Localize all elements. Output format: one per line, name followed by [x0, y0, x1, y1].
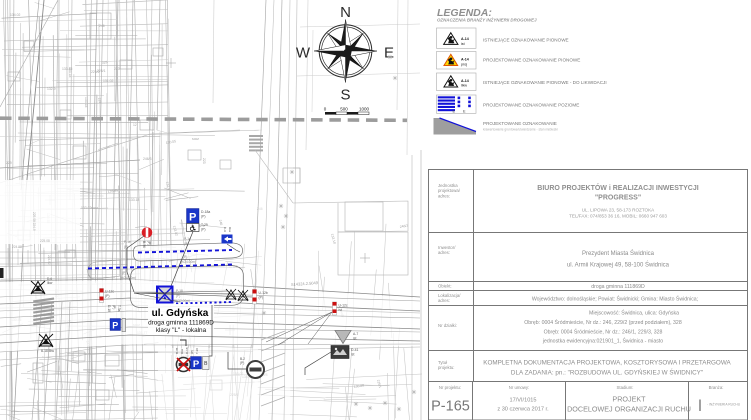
svg-text:ist: ist — [461, 42, 465, 46]
svg-text:224.82: 224.82 — [47, 255, 51, 265]
svg-text:droga gminna 111869D: droga gminna 111869D — [148, 320, 214, 327]
svg-text:Obiekt:: Obiekt: — [438, 284, 452, 289]
svg-text:229: 229 — [97, 97, 102, 104]
svg-text:D-18: D-18 — [185, 347, 189, 354]
svg-text:229: 229 — [6, 161, 12, 165]
svg-text:ist: ist — [353, 337, 356, 341]
svg-text:500: 500 — [340, 106, 348, 111]
svg-text:Nr projektu:: Nr projektu: — [439, 385, 461, 390]
svg-text:130.55: 130.55 — [165, 139, 176, 145]
svg-text:z 30 czerwca 2017 r.: z 30 czerwca 2017 r. — [497, 407, 549, 413]
svg-text:likw: likw — [47, 281, 53, 285]
svg-text:133.18: 133.18 — [84, 97, 88, 107]
svg-text:(P): (P) — [105, 294, 110, 298]
svg-text:likw: likw — [461, 84, 467, 88]
svg-text:Branża:: Branża: — [709, 385, 724, 390]
svg-text:133.02: 133.02 — [172, 225, 179, 236]
svg-text:132.9: 132.9 — [47, 87, 56, 91]
svg-text:D-18: D-18 — [107, 305, 111, 312]
svg-text:225/1: 225/1 — [97, 69, 106, 73]
svg-text:133.18: 133.18 — [330, 233, 337, 244]
svg-text:S: S — [340, 87, 350, 104]
svg-text:BIURO PROJEKTÓW i REALIZACJI I: BIURO PROJEKTÓW i REALIZACJI INWESTYCJI — [537, 183, 698, 192]
svg-text:134.02: 134.02 — [10, 13, 20, 17]
svg-text:C-9: C-9 — [223, 227, 227, 232]
svg-text:U-12c: U-12c — [105, 290, 114, 294]
svg-text:(H/24.00m): (H/24.00m) — [120, 276, 136, 280]
svg-text:proj: proj — [461, 62, 467, 66]
svg-text:PROJEKTOWANE OZNAKOWANIE PIONO: PROJEKTOWANE OZNAKOWANIE PIONOWE — [483, 58, 580, 63]
svg-text:246/3: 246/3 — [143, 157, 152, 161]
svg-text:OZNACZENIA BRANŻY INŻYNIERII D: OZNACZENIA BRANŻY INŻYNIERII DROGOWEJ — [437, 17, 537, 22]
svg-text:ISTNIEJĄCE OZNAKOWANIE PIONOWE: ISTNIEJĄCE OZNAKOWANIE PIONOWE - DO LIKW… — [483, 80, 607, 85]
svg-text:Obręb: 0004 Śródmieście, Nr dz: Obręb: 0004 Śródmieście, Nr dz.: 246/1, … — [544, 328, 663, 336]
svg-text:D-41: D-41 — [351, 348, 358, 352]
svg-text:N: N — [340, 4, 351, 21]
svg-text:B-18 likw: B-18 likw — [41, 349, 55, 353]
svg-text:Obręb: 0004 Śródmieście, Nr dz: Obręb: 0004 Śródmieście, Nr dz.: 246, 22… — [524, 318, 682, 326]
svg-text:PROJEKTOWANE OZNAKOWANIE: PROJEKTOWANE OZNAKOWANIE — [483, 121, 557, 126]
svg-text:133.45: 133.45 — [107, 188, 118, 194]
svg-text:225.08: 225.08 — [40, 239, 50, 243]
svg-text:droga gminna 111869D: droga gminna 111869D — [591, 284, 645, 290]
svg-text:(P): (P) — [124, 245, 128, 249]
svg-text:1000: 1000 — [359, 106, 370, 111]
svg-text:socz: socz — [91, 206, 98, 210]
svg-text:adres:: adres: — [438, 250, 450, 255]
svg-text:225.08 224.9: 225.08 224.9 — [32, 212, 36, 231]
svg-text:(P): (P) — [147, 241, 151, 245]
svg-text:246: 246 — [218, 219, 223, 226]
svg-text:P: P — [112, 321, 118, 331]
svg-text:ISTNIEJĄCE OZNAKOWANIE PIONOWE: ISTNIEJĄCE OZNAKOWANIE PIONOWE — [483, 38, 569, 43]
svg-text:A-14: A-14 — [461, 37, 469, 41]
svg-text:(P): (P) — [240, 361, 244, 365]
svg-text:(P): (P) — [201, 215, 206, 219]
svg-text:likw: likw — [228, 227, 232, 233]
svg-text:UL. LIPOWA 23, 58-173 ROZTOKA: UL. LIPOWA 23, 58-173 ROZTOKA — [582, 208, 655, 213]
svg-text:adres:: adres: — [438, 298, 450, 303]
svg-text:P-165: P-165 — [431, 399, 470, 415]
svg-text:224.98: 224.98 — [12, 245, 22, 249]
svg-text:socz: socz — [192, 137, 199, 141]
svg-text:P: P — [193, 359, 200, 370]
svg-text:246/3: 246/3 — [399, 224, 408, 229]
svg-text:likw: likw — [180, 348, 184, 354]
svg-text:A-14: A-14 — [461, 79, 469, 83]
svg-text:I: I — [698, 396, 703, 415]
svg-text:223: 223 — [114, 67, 120, 71]
svg-text:T-29: T-29 — [201, 223, 208, 227]
svg-text:ist: ist — [351, 353, 354, 357]
svg-text:(P): (P) — [259, 296, 264, 300]
svg-text:0: 0 — [324, 106, 327, 111]
svg-text:12: 12 — [133, 123, 137, 127]
svg-text:Miejscowość: Świdnica, ulica:: Miejscowość: Świdnica, ulica: Gdyńska — [589, 309, 679, 317]
svg-text:P-18: P-18 — [176, 289, 183, 293]
svg-text:klasy "L" - lokalna: klasy "L" - lokalna — [156, 327, 207, 334]
svg-text:Województwo: dolnośląskie; Pow: Województwo: dolnośląskie; Powiat: Świdn… — [532, 295, 698, 303]
svg-text:ul. Gdyńska: ul. Gdyńska — [152, 308, 209, 319]
svg-text:T-30: T-30 — [195, 348, 199, 354]
svg-text:Stadium:: Stadium: — [617, 385, 634, 390]
svg-text:W: W — [296, 45, 311, 62]
svg-text:132.9: 132.9 — [165, 181, 171, 190]
svg-text:133.45: 133.45 — [62, 67, 72, 71]
svg-text:(P): (P) — [112, 305, 116, 309]
svg-text:"PROGRESS": "PROGRESS" — [595, 195, 641, 202]
svg-text:A-7: A-7 — [353, 332, 358, 336]
svg-text:KOMPLETNA DOKUMENTACJA PROJEKT: KOMPLETNA DOKUMENTACJA PROJEKTOWA, KOSZT… — [483, 360, 731, 367]
svg-text:A-14: A-14 — [461, 58, 469, 62]
svg-text:17/VI/1015: 17/VI/1015 — [509, 398, 536, 404]
svg-text:- INŻYNIERIA RUCHU: - INŻYNIERIA RUCHU — [707, 402, 741, 407]
svg-text:ist: ist — [339, 308, 342, 312]
svg-text:246: 246 — [99, 24, 105, 28]
svg-text:D-18a: D-18a — [201, 210, 210, 214]
svg-text:223: 223 — [202, 158, 206, 164]
svg-text:ul. Armii Krajowej 49, 58-100: ul. Armii Krajowej 49, 58-100 Świdnica — [567, 261, 670, 269]
svg-text:E: E — [384, 45, 394, 62]
svg-text:jednostka ewidencyjna:021901_1: jednostka ewidencyjna:021901_1, Świdnica… — [542, 337, 663, 345]
svg-text:PROJEKTOWANE OZNAKOWANIE POZIO: PROJEKTOWANE OZNAKOWANIE POZIOME — [483, 102, 579, 107]
svg-text:U-12b: U-12b — [259, 291, 268, 295]
svg-text:B-36: B-36 — [142, 241, 146, 248]
svg-text:(P): (P) — [201, 228, 206, 232]
svg-text:krawertowanie gruntowe/utwardz: krawertowanie gruntowe/utwardzenie - sta… — [483, 127, 558, 131]
svg-text:Nr umowy:: Nr umowy: — [509, 385, 530, 390]
svg-text:133.02: 133.02 — [81, 206, 91, 210]
svg-text:PROJEKT: PROJEKT — [612, 395, 646, 404]
svg-text:Nr działki:: Nr działki: — [438, 323, 457, 328]
svg-text:projektu:: projektu: — [438, 365, 454, 370]
svg-text:S14324.2.5049: S14324.2.5049 — [291, 280, 319, 287]
svg-text:Prezydent Miasta Świdnica: Prezydent Miasta Świdnica — [582, 249, 655, 257]
svg-text:(P): (P) — [190, 350, 194, 354]
svg-text:DLA ZADANIA: pn.: "ROZBUDOWA U: DLA ZADANIA: pn.: "ROZBUDOWA UL. GDYŃSKI… — [511, 368, 703, 377]
svg-text:(H/24.00m): (H/24.00m) — [180, 260, 196, 264]
svg-text:adres:: adres: — [438, 193, 450, 198]
svg-text:B-35: B-35 — [175, 347, 179, 354]
svg-text:DOCELOWEJ ORGANIZACJI RUCHU: DOCELOWEJ ORGANIZACJI RUCHU — [567, 405, 691, 414]
svg-text:133.18: 133.18 — [129, 198, 139, 202]
svg-text:P: P — [189, 212, 196, 224]
svg-text:(P): (P) — [122, 271, 126, 275]
svg-text:328: 328 — [101, 60, 107, 65]
svg-text:TEL/FAX: 074/853 36 16, MOBIL:: TEL/FAX: 074/853 36 16, MOBIL: 0660 947 … — [569, 214, 667, 219]
svg-text:T-3a: T-3a — [117, 305, 121, 312]
svg-text:130.88: 130.88 — [353, 383, 364, 389]
svg-text:U-12c: U-12c — [339, 304, 348, 308]
svg-text:131.02: 131.02 — [103, 79, 113, 83]
svg-text:225/1: 225/1 — [376, 379, 382, 388]
svg-text:P-1e: P-1e — [124, 240, 131, 244]
